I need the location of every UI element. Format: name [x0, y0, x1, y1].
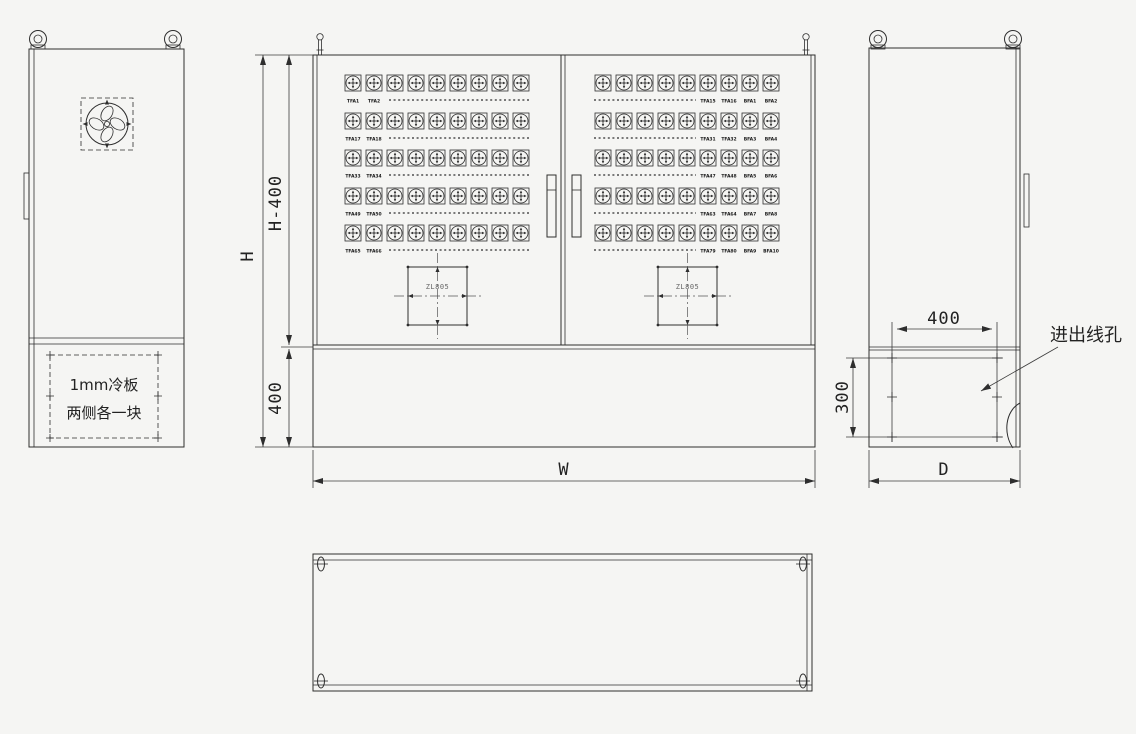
- terminal-connector-icon: [616, 113, 632, 129]
- connector-label: BFA6: [765, 174, 778, 180]
- terminal-connector-icon: [637, 113, 653, 129]
- terminal-connector-grid: TFA1TFA2TFA17TFA18TFA33TFA34TFA49TFA50TF…: [345, 75, 779, 255]
- terminal-connector-icon: [492, 113, 508, 129]
- terminal-connector-icon: [658, 188, 674, 204]
- terminal-connector-icon: [366, 188, 382, 204]
- terminal-connector-icon: [387, 225, 403, 241]
- terminal-connector-icon: [513, 225, 529, 241]
- connector-label: BFA7: [744, 212, 757, 218]
- terminal-connector-icon: [471, 113, 487, 129]
- connector-label: TFA65: [345, 249, 360, 255]
- eye-bolt-top-icon: [796, 557, 810, 571]
- eye-bolt-top-icon: [314, 674, 328, 688]
- terminal-connector-icon: [429, 150, 445, 166]
- terminal-connector-icon: [408, 225, 424, 241]
- terminal-connector-icon: [513, 150, 529, 166]
- connector-label: TFA33: [345, 174, 360, 180]
- terminal-connector-icon: [679, 113, 695, 129]
- terminal-connector-icon: [345, 225, 361, 241]
- terminal-connector-icon: [742, 113, 758, 129]
- terminal-connector-icon: [658, 225, 674, 241]
- terminal-connector-icon: [366, 75, 382, 91]
- terminal-connector-icon: [700, 225, 716, 241]
- connector-label: BFA4: [765, 137, 778, 143]
- terminal-connector-icon: [637, 150, 653, 166]
- terminal-connector-icon: [721, 75, 737, 91]
- terminal-connector-icon: [450, 225, 466, 241]
- terminal-connector-icon: [492, 75, 508, 91]
- terminal-connector-icon: [595, 113, 611, 129]
- terminal-connector-icon: [700, 188, 716, 204]
- terminal-connector-icon: [387, 75, 403, 91]
- connector-label: TFA64: [721, 212, 736, 218]
- connector-label: BFA2: [765, 99, 778, 105]
- terminal-connector-icon: [345, 75, 361, 91]
- terminal-connector-icon: [429, 225, 445, 241]
- connector-label: TFA15: [700, 99, 715, 105]
- connector-label: TFA16: [721, 99, 736, 105]
- terminal-connector-icon: [471, 150, 487, 166]
- terminal-connector-icon: [616, 150, 632, 166]
- connector-label: TFA31: [700, 137, 715, 143]
- terminal-connector-icon: [616, 188, 632, 204]
- wire-hole-label: 进出线孔: [1050, 325, 1122, 346]
- terminal-connector-icon: [429, 113, 445, 129]
- terminal-connector-icon: [595, 75, 611, 91]
- terminal-connector-icon: [616, 75, 632, 91]
- terminal-connector-icon: [492, 225, 508, 241]
- top-plan-view: [313, 554, 812, 691]
- terminal-connector-icon: [408, 150, 424, 166]
- cold-plate-dashed-area: 1mm冷板 两侧各一块: [46, 351, 162, 442]
- dim-label-hole-height: 300: [833, 380, 853, 414]
- drawing-canvas: 1mm冷板 两侧各一块 TFA1TFA2TFA17TFA18TFA33TFA34…: [0, 0, 1136, 734]
- dim-label-400: 400: [266, 381, 286, 415]
- terminal-connector-icon: [450, 75, 466, 91]
- terminal-connector-icon: [387, 188, 403, 204]
- terminal-connector-icon: [408, 188, 424, 204]
- door-handle: [547, 175, 556, 237]
- terminal-connector-icon: [742, 150, 758, 166]
- terminal-connector-icon: [492, 188, 508, 204]
- connector-label: BFA9: [744, 249, 757, 255]
- terminal-connector-icon: [366, 113, 382, 129]
- left-side-view: 1mm冷板 两侧各一块: [24, 31, 184, 448]
- right-side-view: 400 300 D 进出线孔: [833, 31, 1122, 489]
- terminal-connector-icon: [616, 225, 632, 241]
- terminal-connector-icon: [679, 150, 695, 166]
- connector-label: TFA50: [366, 212, 381, 218]
- connector-label: TFA63: [700, 212, 715, 218]
- terminal-connector-icon: [700, 113, 716, 129]
- terminal-connector-icon: [742, 225, 758, 241]
- terminal-connector-icon: [387, 113, 403, 129]
- connector-label: TFA2: [368, 99, 380, 105]
- terminal-connector-icon: [637, 75, 653, 91]
- dim-label-d: D: [938, 460, 949, 480]
- cable-cutout-left: ZL805: [394, 253, 481, 339]
- terminal-connector-icon: [679, 75, 695, 91]
- terminal-connector-icon: [471, 188, 487, 204]
- terminal-connector-icon: [679, 188, 695, 204]
- eye-bolt-top-icon: [796, 674, 810, 688]
- terminal-connector-icon: [450, 188, 466, 204]
- terminal-connector-icon: [721, 225, 737, 241]
- terminal-connector-icon: [742, 75, 758, 91]
- connector-label: TFA32: [721, 137, 736, 143]
- terminal-connector-icon: [595, 150, 611, 166]
- lifting-ring-icon: [30, 31, 47, 50]
- lifting-ring-icon: [165, 31, 182, 50]
- terminal-connector-icon: [492, 150, 508, 166]
- wire-hole-area: [846, 322, 1003, 442]
- connector-label: BFA10: [763, 249, 779, 255]
- eye-bolt-top-icon: [314, 557, 328, 571]
- connector-label: TFA1: [347, 99, 359, 105]
- connector-label: TFA18: [366, 137, 381, 143]
- front-view: TFA1TFA2TFA17TFA18TFA33TFA34TFA49TFA50TF…: [313, 34, 815, 447]
- terminal-connector-icon: [763, 75, 779, 91]
- lifting-lug-icon: [803, 34, 810, 55]
- terminal-connector-icon: [700, 150, 716, 166]
- terminal-connector-icon: [513, 113, 529, 129]
- cable-gland-curve: [1007, 403, 1020, 448]
- terminal-connector-icon: [658, 75, 674, 91]
- terminal-connector-icon: [763, 113, 779, 129]
- cold-plate-note-line1: 1mm冷板: [70, 376, 139, 394]
- terminal-connector-icon: [763, 225, 779, 241]
- cold-plate-note-line2: 两侧各一块: [66, 404, 141, 422]
- terminal-connector-icon: [366, 225, 382, 241]
- connector-label: BFA5: [744, 174, 757, 180]
- terminal-connector-icon: [721, 113, 737, 129]
- connector-label: TFA80: [721, 249, 736, 255]
- connector-label: TFA66: [366, 249, 381, 255]
- connector-label: BFA1: [744, 99, 757, 105]
- terminal-connector-icon: [658, 113, 674, 129]
- fan-icon: [81, 98, 133, 150]
- dim-label-hole-width: 400: [927, 309, 961, 329]
- front-view-dimensions: H H-400 400 W: [238, 55, 815, 488]
- terminal-connector-icon: [471, 225, 487, 241]
- cutout-label: ZL805: [676, 283, 700, 291]
- dim-label-w: W: [558, 460, 569, 480]
- lifting-ring-icon: [1005, 31, 1022, 50]
- terminal-connector-icon: [429, 75, 445, 91]
- terminal-connector-icon: [345, 113, 361, 129]
- terminal-connector-icon: [345, 150, 361, 166]
- terminal-connector-icon: [429, 188, 445, 204]
- door-handle: [572, 175, 581, 237]
- lifting-ring-icon: [870, 31, 887, 50]
- terminal-connector-icon: [471, 75, 487, 91]
- terminal-connector-icon: [742, 188, 758, 204]
- connector-label: TFA34: [366, 174, 381, 180]
- terminal-connector-icon: [721, 188, 737, 204]
- cutout-label: ZL805: [426, 283, 450, 291]
- terminal-connector-icon: [450, 113, 466, 129]
- terminal-connector-icon: [679, 225, 695, 241]
- cabinet-engineering-drawing: 1mm冷板 两侧各一块 TFA1TFA2TFA17TFA18TFA33TFA34…: [0, 0, 1136, 734]
- connector-label: BFA8: [765, 212, 778, 218]
- connector-label: TFA49: [345, 212, 360, 218]
- terminal-connector-icon: [637, 188, 653, 204]
- terminal-connector-icon: [763, 188, 779, 204]
- terminal-connector-icon: [366, 150, 382, 166]
- lifting-lug-icon: [317, 34, 324, 55]
- cable-cutout-right: ZL805: [644, 253, 731, 339]
- terminal-connector-icon: [408, 113, 424, 129]
- terminal-connector-icon: [513, 188, 529, 204]
- terminal-connector-icon: [513, 75, 529, 91]
- terminal-connector-icon: [595, 188, 611, 204]
- terminal-connector-icon: [408, 75, 424, 91]
- terminal-connector-icon: [345, 188, 361, 204]
- terminal-connector-icon: [700, 75, 716, 91]
- terminal-connector-icon: [658, 150, 674, 166]
- terminal-connector-icon: [387, 150, 403, 166]
- connector-label: TFA47: [700, 174, 715, 180]
- terminal-connector-icon: [595, 225, 611, 241]
- terminal-connector-icon: [763, 150, 779, 166]
- connector-label: TFA17: [345, 137, 360, 143]
- door-hinge: [24, 173, 29, 219]
- dim-label-h: H: [238, 250, 258, 261]
- terminal-connector-icon: [450, 150, 466, 166]
- connector-label: TFA79: [700, 249, 715, 255]
- terminal-connector-icon: [637, 225, 653, 241]
- connector-label: TFA48: [721, 174, 736, 180]
- connector-label: BFA3: [744, 137, 757, 143]
- terminal-connector-icon: [721, 150, 737, 166]
- door-hinge: [1024, 174, 1029, 227]
- dim-label-h-400: H-400: [266, 175, 286, 231]
